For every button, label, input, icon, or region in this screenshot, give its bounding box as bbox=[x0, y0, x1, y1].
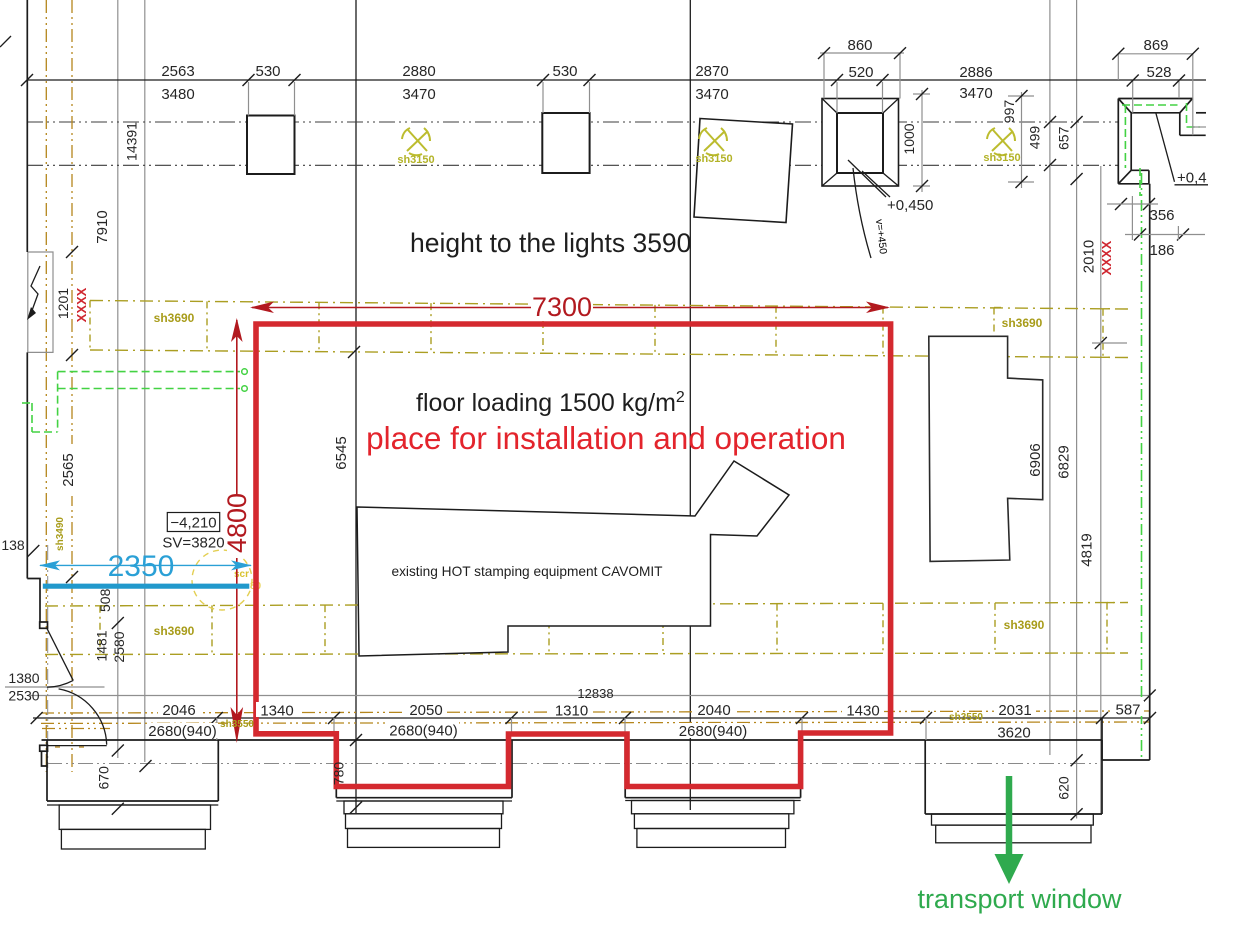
svg-text:sh3690: sh3690 bbox=[1004, 618, 1045, 632]
svg-text:520: 520 bbox=[848, 64, 873, 81]
svg-text:2040: 2040 bbox=[697, 702, 730, 719]
svg-text:14391: 14391 bbox=[124, 122, 140, 161]
svg-text:670: 670 bbox=[96, 766, 112, 790]
svg-text:7910: 7910 bbox=[94, 210, 111, 243]
svg-text:sh3150: sh3150 bbox=[695, 153, 732, 165]
svg-text:657: 657 bbox=[1056, 126, 1072, 150]
svg-text:sh3690: sh3690 bbox=[154, 311, 195, 325]
svg-text:SV=3820: SV=3820 bbox=[162, 535, 224, 552]
svg-text:6829: 6829 bbox=[1056, 445, 1073, 478]
svg-text:2886: 2886 bbox=[959, 64, 992, 81]
svg-text:2680(940): 2680(940) bbox=[148, 723, 216, 740]
svg-text:1310: 1310 bbox=[555, 703, 588, 720]
svg-text:sh3690: sh3690 bbox=[1002, 316, 1043, 330]
svg-text:530: 530 bbox=[552, 63, 577, 80]
svg-text:sh3690: sh3690 bbox=[154, 624, 195, 638]
svg-text:508: 508 bbox=[97, 588, 113, 612]
svg-text:2680(940): 2680(940) bbox=[389, 723, 457, 740]
svg-text:997: 997 bbox=[1001, 100, 1017, 124]
svg-text:186: 186 bbox=[1149, 242, 1174, 259]
svg-text:780: 780 bbox=[331, 762, 347, 786]
svg-text:sh3550: sh3550 bbox=[949, 712, 983, 723]
svg-text:−4,210: −4,210 bbox=[170, 515, 216, 532]
svg-text:12838: 12838 bbox=[577, 686, 613, 701]
svg-text:869: 869 bbox=[1143, 37, 1168, 54]
svg-text:+0,4: +0,4 bbox=[1177, 170, 1207, 187]
svg-text:floor loading 1500 kg/m2: floor loading 1500 kg/m2 bbox=[416, 389, 685, 417]
svg-text:1201: 1201 bbox=[55, 288, 71, 319]
svg-text:2046: 2046 bbox=[162, 702, 195, 719]
svg-text:530: 530 bbox=[255, 63, 280, 80]
svg-text:XXXX: XXXX bbox=[1099, 240, 1114, 275]
svg-text:sh3150: sh3150 bbox=[983, 152, 1020, 164]
svg-text:2010: 2010 bbox=[1081, 240, 1098, 273]
svg-text:2870: 2870 bbox=[695, 63, 728, 80]
svg-text:356: 356 bbox=[1149, 207, 1174, 224]
svg-text:1000: 1000 bbox=[901, 123, 917, 154]
svg-text:2580: 2580 bbox=[111, 631, 127, 662]
svg-text:6906: 6906 bbox=[1027, 443, 1044, 476]
svg-text:860: 860 bbox=[847, 37, 872, 54]
svg-text:place for installation and ope: place for installation and operation bbox=[366, 420, 846, 456]
svg-text:2680(940): 2680(940) bbox=[679, 723, 747, 740]
svg-text:3470: 3470 bbox=[959, 85, 992, 102]
svg-text:4819: 4819 bbox=[1079, 533, 1096, 566]
svg-text:1380: 1380 bbox=[8, 670, 39, 686]
svg-text:499: 499 bbox=[1027, 126, 1043, 150]
svg-text:sh3550: sh3550 bbox=[220, 719, 254, 730]
svg-text:2565: 2565 bbox=[60, 453, 77, 486]
svg-text:2563: 2563 bbox=[161, 63, 194, 80]
svg-text:528: 528 bbox=[1146, 64, 1171, 81]
svg-text:2350: 2350 bbox=[108, 550, 175, 583]
svg-text:height to the lights 3590: height to the lights 3590 bbox=[410, 228, 691, 258]
svg-text:587: 587 bbox=[1115, 702, 1140, 719]
svg-text:3470: 3470 bbox=[695, 86, 728, 103]
svg-text:2050: 2050 bbox=[409, 702, 442, 719]
svg-text:4800: 4800 bbox=[222, 493, 252, 553]
svg-text:7300: 7300 bbox=[532, 292, 592, 322]
svg-text:3620: 3620 bbox=[997, 725, 1030, 742]
svg-text:138: 138 bbox=[1, 537, 25, 553]
svg-text:2880: 2880 bbox=[402, 63, 435, 80]
svg-text:1340: 1340 bbox=[260, 703, 293, 720]
svg-text:3480: 3480 bbox=[161, 86, 194, 103]
svg-text:existing HOT stamping equipmen: existing HOT stamping equipment CAVOMIT bbox=[391, 564, 663, 579]
svg-text:620: 620 bbox=[1055, 776, 1071, 800]
svg-text:sh3490: sh3490 bbox=[55, 517, 66, 551]
svg-text:2031: 2031 bbox=[998, 702, 1031, 719]
svg-text:+0,450: +0,450 bbox=[887, 197, 933, 214]
svg-text:2530: 2530 bbox=[8, 688, 39, 704]
svg-text:1430: 1430 bbox=[846, 703, 879, 720]
svg-text:sh3150: sh3150 bbox=[397, 154, 434, 166]
svg-text:3470: 3470 bbox=[402, 86, 435, 103]
svg-text:transport window: transport window bbox=[917, 884, 1122, 914]
svg-text:6545: 6545 bbox=[333, 436, 350, 469]
svg-text:1481: 1481 bbox=[94, 630, 110, 661]
svg-text:XXXX: XXXX bbox=[74, 287, 89, 322]
